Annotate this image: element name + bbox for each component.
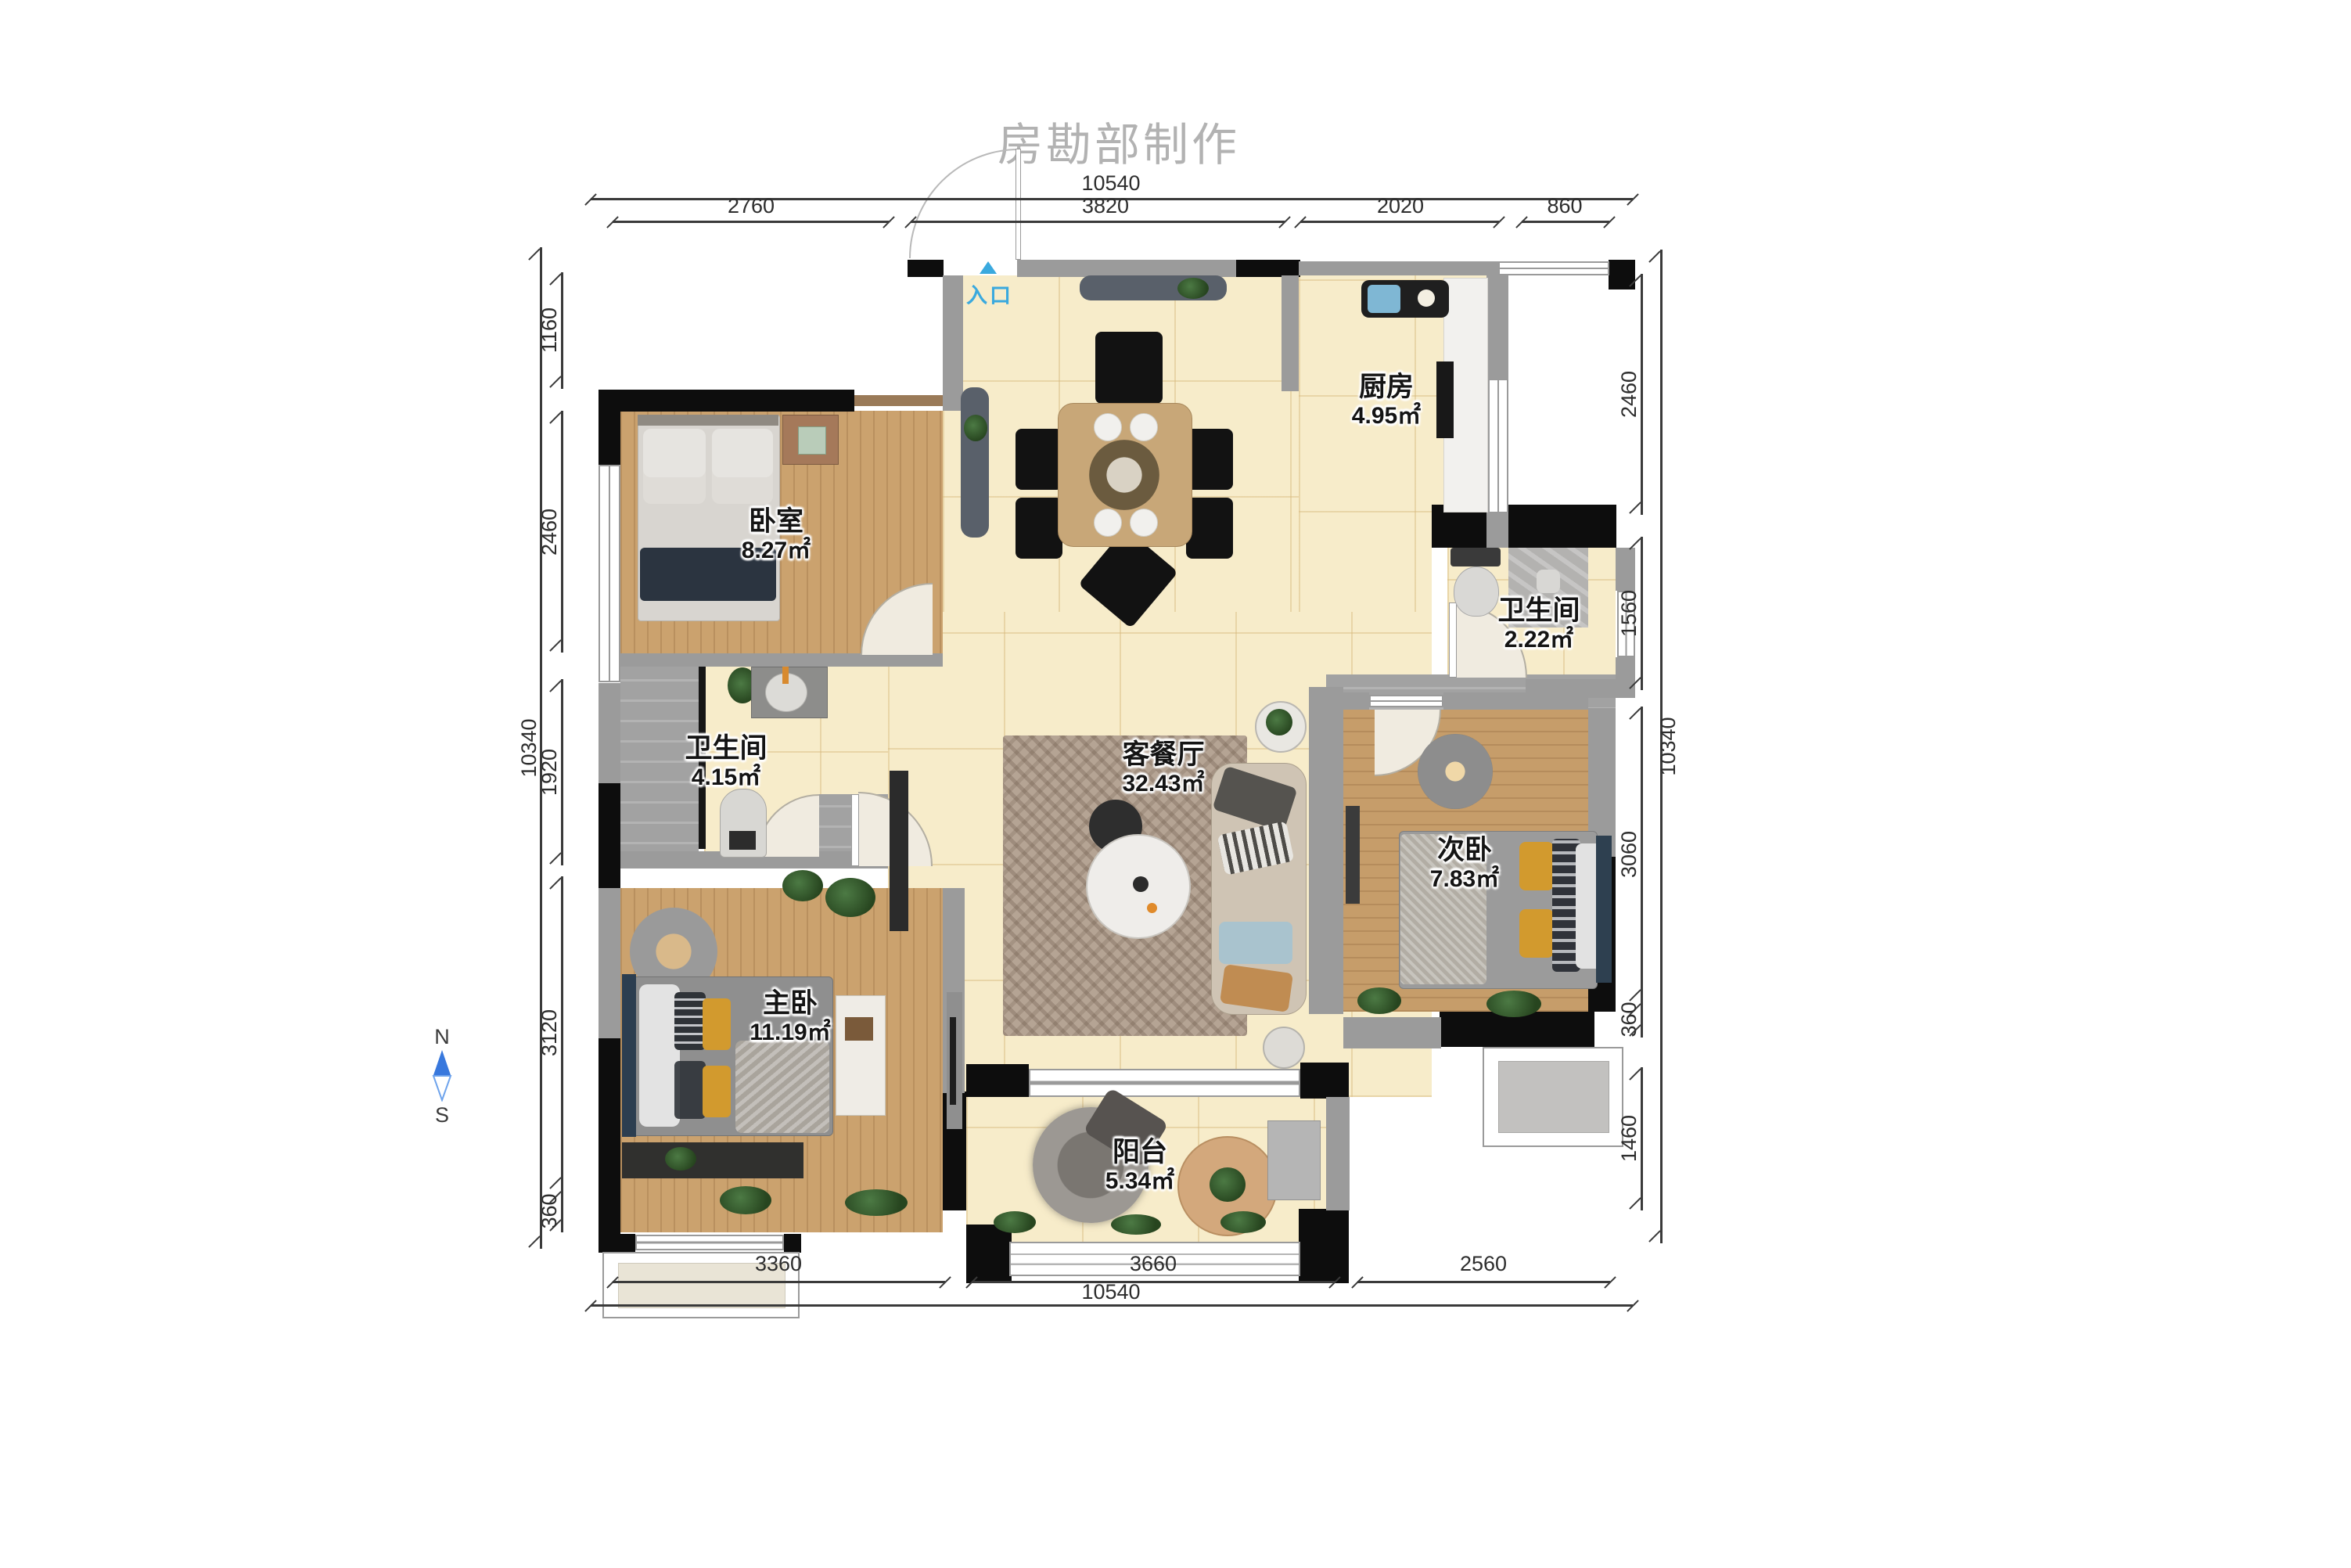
dimension-label: 3120: [537, 978, 561, 1088]
tv-console: [890, 771, 908, 931]
side-table: [1263, 1027, 1305, 1069]
plant: [1486, 991, 1541, 1017]
dimension-line: [561, 411, 563, 653]
dimension-label: 3660: [1075, 1252, 1231, 1276]
room-label-balcony: 阳台 5.34㎡: [1046, 1138, 1234, 1196]
plant: [782, 870, 823, 901]
nightstand-decor: [798, 426, 826, 455]
plant: [845, 1189, 908, 1216]
balcony-sliding-door: [1029, 1069, 1300, 1097]
window: [1488, 379, 1508, 513]
plant: [1357, 987, 1401, 1014]
room-area: 5.34㎡: [1046, 1167, 1234, 1196]
corridor-floor: [1299, 512, 1432, 613]
room-area: 7.83㎡: [1371, 865, 1558, 894]
console-table: [961, 387, 989, 538]
room-name: 卫生间: [1445, 596, 1633, 626]
wall: [784, 1234, 801, 1253]
wall: [966, 1225, 1012, 1283]
room-label-living: 客餐厅 32.43㎡: [1069, 740, 1257, 798]
sofa-pillow: [1219, 922, 1292, 964]
dimension-label: 3820: [1027, 194, 1184, 218]
shower-drain: [1537, 570, 1560, 593]
tv: [950, 1017, 956, 1105]
room-label-bath-left: 卫生间 4.15㎡: [632, 734, 820, 792]
bed-headboard: [638, 415, 778, 426]
wall: [1299, 1209, 1349, 1283]
wall: [1326, 1097, 1350, 1210]
wall: [599, 1234, 635, 1253]
dimension-label: 10540: [1033, 171, 1189, 196]
window: [599, 465, 620, 682]
bed-headboard: [622, 974, 636, 1137]
room-label-bath-right: 卫生间 2.22㎡: [1445, 596, 1633, 654]
dimension-label: 2460: [537, 477, 561, 587]
wall: [854, 395, 943, 406]
room-name: 卫生间: [632, 734, 820, 764]
plate: [1094, 509, 1122, 537]
plate: [1130, 509, 1158, 537]
table-decor: [1133, 876, 1149, 892]
compass: N S: [407, 1025, 477, 1127]
toilet-seat: [729, 831, 756, 850]
dimension-line: [613, 221, 889, 223]
dimension-line: [1522, 221, 1609, 223]
dimension-label: 860: [1486, 194, 1643, 218]
compass-north-label: N: [407, 1025, 477, 1049]
room-area: 4.95㎡: [1292, 402, 1480, 430]
dimension-line: [1641, 1067, 1643, 1210]
toilet-tank: [1451, 548, 1501, 566]
room-name: 厨房: [1292, 372, 1480, 402]
plate: [1130, 413, 1158, 441]
shelf: [1346, 806, 1360, 904]
room-name: 卧室: [682, 507, 870, 537]
entry-arrow-icon: [980, 261, 997, 274]
room-name: 次卧: [1371, 836, 1558, 865]
compass-south-label: S: [407, 1103, 477, 1127]
master-door-leaf: [851, 794, 859, 866]
dimension-line: [1641, 537, 1643, 690]
room-name: 阳台: [1046, 1138, 1234, 1167]
wall: [1236, 260, 1300, 277]
wall: [1486, 512, 1508, 548]
wall: [602, 390, 854, 412]
dimension-label: 360: [537, 1156, 561, 1266]
dimension-label: 3060: [1617, 800, 1641, 909]
wall: [1300, 1063, 1349, 1099]
storage-unit: [1267, 1120, 1321, 1200]
room-area: 32.43㎡: [1069, 770, 1257, 798]
wall: [599, 1037, 620, 1234]
plant: [1177, 278, 1209, 299]
faucet: [782, 667, 789, 684]
dimension-line: [561, 1190, 563, 1232]
room-area: 4.15㎡: [632, 764, 820, 792]
entry-label: 入口: [966, 279, 1013, 309]
dimension-line: [561, 876, 563, 1190]
dimension-label: 360: [1617, 965, 1641, 1074]
dining-chair: [1186, 498, 1233, 559]
plate: [1094, 413, 1122, 441]
wall: [908, 260, 944, 277]
round-rug: [1418, 734, 1493, 809]
dimension-line: [591, 1304, 1633, 1307]
window: [635, 1235, 784, 1250]
room-name: 客餐厅: [1069, 740, 1257, 770]
dining-chair: [1186, 429, 1233, 490]
dining-chair: [1016, 498, 1062, 559]
entry-door-leaf: [1016, 149, 1021, 260]
window: [1369, 695, 1443, 707]
page-title: 房勘部制作: [876, 108, 1361, 174]
wall: [599, 390, 620, 465]
wall: [599, 683, 620, 783]
wall: [1343, 1017, 1441, 1048]
dimension-line: [613, 1281, 945, 1283]
bed-throw: [735, 1041, 829, 1133]
dining-chair: [1095, 332, 1163, 404]
dimension-label: 2460: [1617, 340, 1641, 449]
plant: [1220, 1211, 1266, 1233]
room-label-kitchen: 厨房 4.95㎡: [1292, 372, 1480, 430]
wall: [1343, 692, 1369, 710]
wall: [966, 1064, 1029, 1097]
wall: [599, 888, 620, 1038]
dimension-label: 1460: [1617, 1084, 1641, 1193]
dimension-label: 2560: [1405, 1252, 1562, 1276]
dresser: [622, 1142, 803, 1178]
floor-plan-canvas: 房勘部制作: [0, 0, 2351, 1568]
table-centerpiece: [1089, 440, 1159, 510]
dimension-label: 1160: [537, 275, 561, 385]
table-decor: [1147, 903, 1157, 913]
dimension-line: [1300, 221, 1499, 223]
room-label-bedroom: 卧室 8.27㎡: [682, 507, 870, 565]
dimension-label: 2760: [673, 194, 829, 218]
dimension-line: [1641, 707, 1643, 1002]
dimension-line: [561, 679, 563, 865]
dimension-label: 2020: [1322, 194, 1479, 218]
dimension-line: [1641, 274, 1643, 515]
dimension-label: 3360: [700, 1252, 857, 1276]
bed-pillow: [712, 429, 773, 477]
dimension-line: [561, 272, 563, 389]
room-label-second-bedroom: 次卧 7.83㎡: [1371, 836, 1558, 894]
wall: [1309, 687, 1343, 1014]
wall: [1526, 679, 1616, 698]
bed-headboard: [1596, 836, 1612, 983]
dimension-line: [1641, 1002, 1643, 1038]
wall: [943, 275, 963, 411]
wall: [620, 653, 943, 667]
room-name: 主卧: [696, 989, 884, 1019]
room-label-master-bedroom: 主卧 11.19㎡: [696, 989, 884, 1047]
wall: [1017, 260, 1236, 277]
room-area: 8.27㎡: [682, 537, 870, 565]
wall: [1486, 275, 1508, 379]
window: [1498, 261, 1609, 275]
plant: [1111, 1214, 1161, 1235]
dimension-label: 10340: [1656, 692, 1680, 801]
compass-needle-icon: [426, 1050, 458, 1102]
dimension-label: 1560: [1617, 559, 1641, 668]
room-area: 2.22㎡: [1445, 626, 1633, 654]
dimension-label: 1920: [537, 717, 561, 827]
plant: [964, 415, 987, 441]
plant: [1266, 709, 1292, 735]
plant: [720, 1186, 771, 1214]
wall: [1299, 261, 1498, 275]
plant: [825, 878, 875, 917]
stove-burner: [1418, 290, 1435, 307]
dining-chair: [1016, 429, 1062, 490]
bay-window-sill: [1498, 1061, 1609, 1133]
room-area: 11.19㎡: [696, 1019, 884, 1047]
wall: [599, 782, 620, 888]
plant: [665, 1147, 696, 1171]
sink-basin: [1368, 285, 1400, 313]
dimension-line: [911, 221, 1285, 223]
plant: [994, 1211, 1036, 1233]
bed-pillow: [643, 429, 706, 477]
dimension-label: 10540: [1033, 1280, 1189, 1304]
dimension-line: [1357, 1281, 1610, 1283]
